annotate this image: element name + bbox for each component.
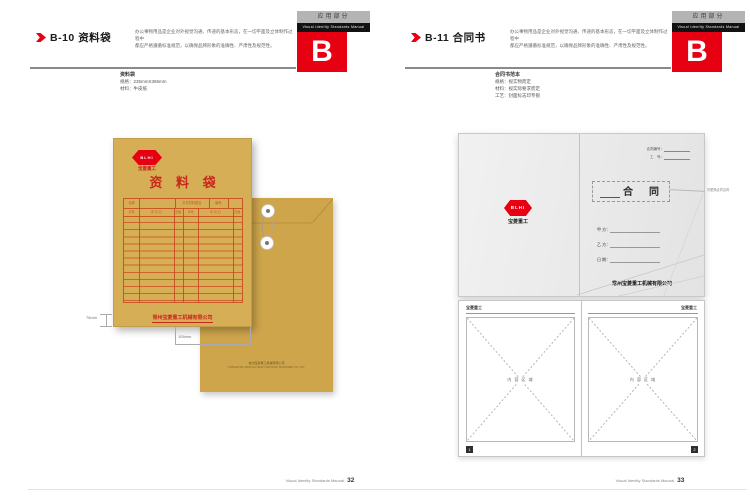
chapter-tab: 应用部分 (297, 11, 370, 23)
dimension-label-height: 78mm (86, 315, 97, 320)
sheet-bottom-rule (28, 489, 747, 490)
spec-process: 工艺：封面标志印专银 (495, 93, 540, 99)
inner-header-rule (466, 313, 575, 314)
envelope-front: BLHI 宝菱重工 资 料 袋 名称 文件材料题名 编号 序号 年 月 日 页数… (113, 138, 252, 327)
spec-material: 材料：牛皮纸 (120, 86, 147, 92)
page-number: 33 (677, 477, 684, 484)
inner-page-right: 宝菱重工 内 容 区 域 2 (581, 301, 704, 456)
page-footer: Visual Identity Standards Manual33 (550, 477, 750, 484)
table-subheader-cell: 页数 (174, 208, 183, 216)
envelope-back-company-en: CHANGZHOU BAOLING HEAVY INDUSTRY MACHINE… (200, 366, 333, 369)
table-subheader-cell: 序号 (124, 208, 139, 216)
table-header-cell: 名称 (124, 199, 139, 208)
section-title: B-10 资料袋 (50, 30, 111, 45)
placeholder-label: 内 容 区 域 (628, 377, 658, 383)
inner-page-left: 宝菱重工 内 容 区 域 1 (459, 301, 581, 456)
table-header-cell: 文件材料题名 (175, 199, 209, 208)
spec-size: 规格：视实物而定 (495, 79, 531, 85)
page-number-marker: 2 (691, 446, 698, 453)
section-code: B-10 (50, 32, 75, 44)
chapter-letter-badge: B (672, 32, 722, 72)
envelope-title: 资 料 袋 (114, 172, 251, 191)
table-header-cell: 编号 (209, 199, 228, 208)
description-line1: 办公事物用品是企业对外视觉沟通、传递的基本形态，在一切平面及立体制作过程中 (135, 28, 295, 42)
content-placeholder-box: 内 容 区 域 (466, 317, 575, 442)
spec-size: 规格：235mmX365mm (120, 79, 167, 85)
section-description: 办公事物用品是企业对外视觉沟通、传递的基本形态，在一切平面及立体制作过程中 都应… (510, 28, 670, 49)
page-footer: Visual Identity Standards Manual32 (220, 477, 420, 484)
company-logo-icon: BLHI (132, 150, 162, 165)
content-placeholder-box: 内 容 区 域 (588, 317, 698, 442)
envelope-company-line: 常州宝菱重工机械有限公司 (114, 306, 251, 324)
description-line2: 都应严格遵循标准规范，以确保品牌形象的准确性、严肃性及规范性。 (510, 42, 670, 49)
chapter-tab: 应用部分 (672, 11, 745, 23)
header-rule (405, 67, 671, 69)
envelope-index-table: 名称 文件材料题名 编号 序号 年 月 日 页数 序号 年 月 日 页数 (123, 198, 243, 303)
placeholder-label: 内 容 区 域 (505, 377, 535, 383)
section-code: B-11 (425, 32, 449, 44)
description-line2: 都应严格遵循标准规范，以确保品牌形象的准确性、严肃性及规范性。 (135, 42, 295, 49)
annotation-text: 可更换合同名称 (707, 187, 747, 192)
spec-title: 合同书范本 (495, 71, 520, 78)
table-subheader-cell: 页数 (233, 208, 242, 216)
spec-title: 资料袋 (120, 71, 135, 78)
inner-page-header: 宝菱重工 (681, 305, 697, 311)
envelope-back-company: 常州宝菱重工机械有限公司 (200, 361, 333, 365)
spec-material: 材料：视实际要求而定 (495, 86, 540, 92)
section-name: 资料袋 (78, 32, 111, 44)
table-subheader-cell: 年 月 日 (198, 208, 232, 216)
contract-inner-spread: 宝菱重工 内 容 区 域 1 宝菱重工 内 容 区 域 2 (458, 300, 705, 457)
manual-name-bar: Visual Identity Standards Manual (672, 23, 745, 32)
cover-fold-lines-icon (459, 134, 704, 296)
manual-page-left: B-10 资料袋 办公事物用品是企业对外视觉沟通、传递的基本形态，在一切平面及立… (28, 0, 372, 500)
table-subheader-cell: 序号 (183, 208, 198, 216)
dimension-label-width: 105mm (178, 334, 191, 339)
section-name: 合同书 (453, 32, 486, 44)
chapter-letter-badge: B (297, 32, 347, 72)
section-arrow-icon (36, 33, 46, 42)
table-subheader-cell: 年 月 日 (139, 208, 173, 216)
inner-header-rule (588, 313, 698, 314)
section-arrow-icon (411, 33, 421, 42)
page-number-marker: 1 (466, 446, 473, 453)
page-number: 32 (347, 477, 354, 484)
description-line1: 办公事物用品是企业对外视觉沟通、传递的基本形态，在一切平面及立体制作过程中 (510, 28, 670, 42)
contract-cover-spread: BLHI 宝菱重工 合同编号： 工 号： 合 同 甲 方： 乙 方： 日 期： … (458, 133, 705, 297)
section-title: B-11 合同书 (425, 30, 486, 45)
manual-name-bar: Visual Identity Standards Manual (297, 23, 370, 32)
manual-page-right: B-11 合同书 办公事物用品是企业对外视觉沟通、传递的基本形态，在一切平面及立… (403, 0, 747, 500)
section-description: 办公事物用品是企业对外视觉沟通、传递的基本形态，在一切平面及立体制作过程中 都应… (135, 28, 295, 49)
header-rule (30, 67, 296, 69)
inner-page-header: 宝菱重工 (466, 305, 482, 311)
